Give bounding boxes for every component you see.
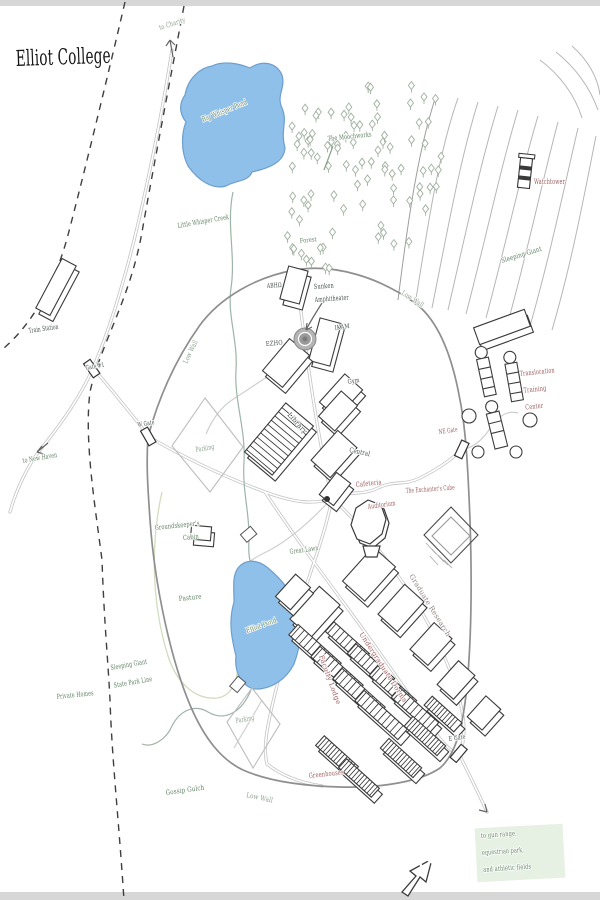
to-new-haven-label: to New Haven (22, 451, 58, 465)
building (467, 696, 504, 736)
train-station-label: Train Station (28, 323, 59, 335)
state-park-line-label: Sleeping GiantState Park Line (110, 657, 153, 689)
moochworks-label: The Moochworks (327, 130, 372, 143)
parking-south-label: Parking (235, 714, 255, 725)
sunken-amphitheater-label: SunkenAmphitheater (313, 281, 349, 304)
enchanters-cube-label: The Enchanter's Cube (406, 484, 455, 495)
big-whisper-pond-water (181, 63, 285, 187)
landmark-icons (37, 40, 537, 896)
to-charity-label: to Charity (158, 16, 186, 32)
ezho-label: EZHO (265, 339, 283, 348)
building (437, 661, 478, 706)
gossip-gulch-label: Gossip Gulch (165, 784, 205, 797)
watchtower-label: Watchtower (534, 178, 565, 186)
great-lawn-label: Great Lawn (289, 544, 319, 556)
gym-label: Gym (347, 376, 360, 386)
building (380, 738, 424, 783)
greenhouses-label: Greenhouses (308, 768, 344, 780)
little-whisper-creek-label: Little Whisper Creek (177, 213, 230, 230)
low-wall-west-label: Low Wall (182, 339, 200, 365)
campus-map: Elliot Collegeto CharityBig Whisper Pond… (0, 0, 600, 900)
w-gate-icon (141, 427, 156, 446)
e-gate-icon (450, 744, 467, 762)
cafeteria-door (324, 496, 330, 502)
translocation-training-center-icon (462, 345, 537, 458)
abh-label: ABHΩ (266, 281, 282, 290)
parking-north-label: Parking (195, 443, 215, 454)
sleeping-giant-label: Sleeping Giant (500, 245, 543, 265)
pasture-label: Pasture (178, 593, 202, 603)
ikam-label: IKAM (334, 322, 350, 332)
ne-gate-label: NE Gate (438, 425, 458, 436)
sunken-amphitheater-icon (294, 328, 316, 350)
building (245, 403, 317, 481)
state-park-boundary (88, 6, 184, 900)
low-wall-ne-label: Low Wall (400, 289, 426, 310)
building (36, 259, 79, 322)
private-homes-label: Private Homes (56, 689, 94, 701)
low-wall-south-label: Low Wall (246, 791, 275, 805)
watchtower-icon (515, 153, 534, 188)
w-gate-label: W Gate (137, 418, 155, 429)
map-title-label: Elliot College (15, 44, 111, 72)
building (339, 759, 383, 803)
map-canvas: Elliot Collegeto CharityBig Whisper Pond… (0, 0, 600, 900)
building (474, 309, 534, 350)
forest-trees (285, 82, 445, 276)
translocation-training-center-label: TranslocationTrainingCenter (519, 366, 558, 411)
forest-label: Forest (299, 235, 317, 245)
